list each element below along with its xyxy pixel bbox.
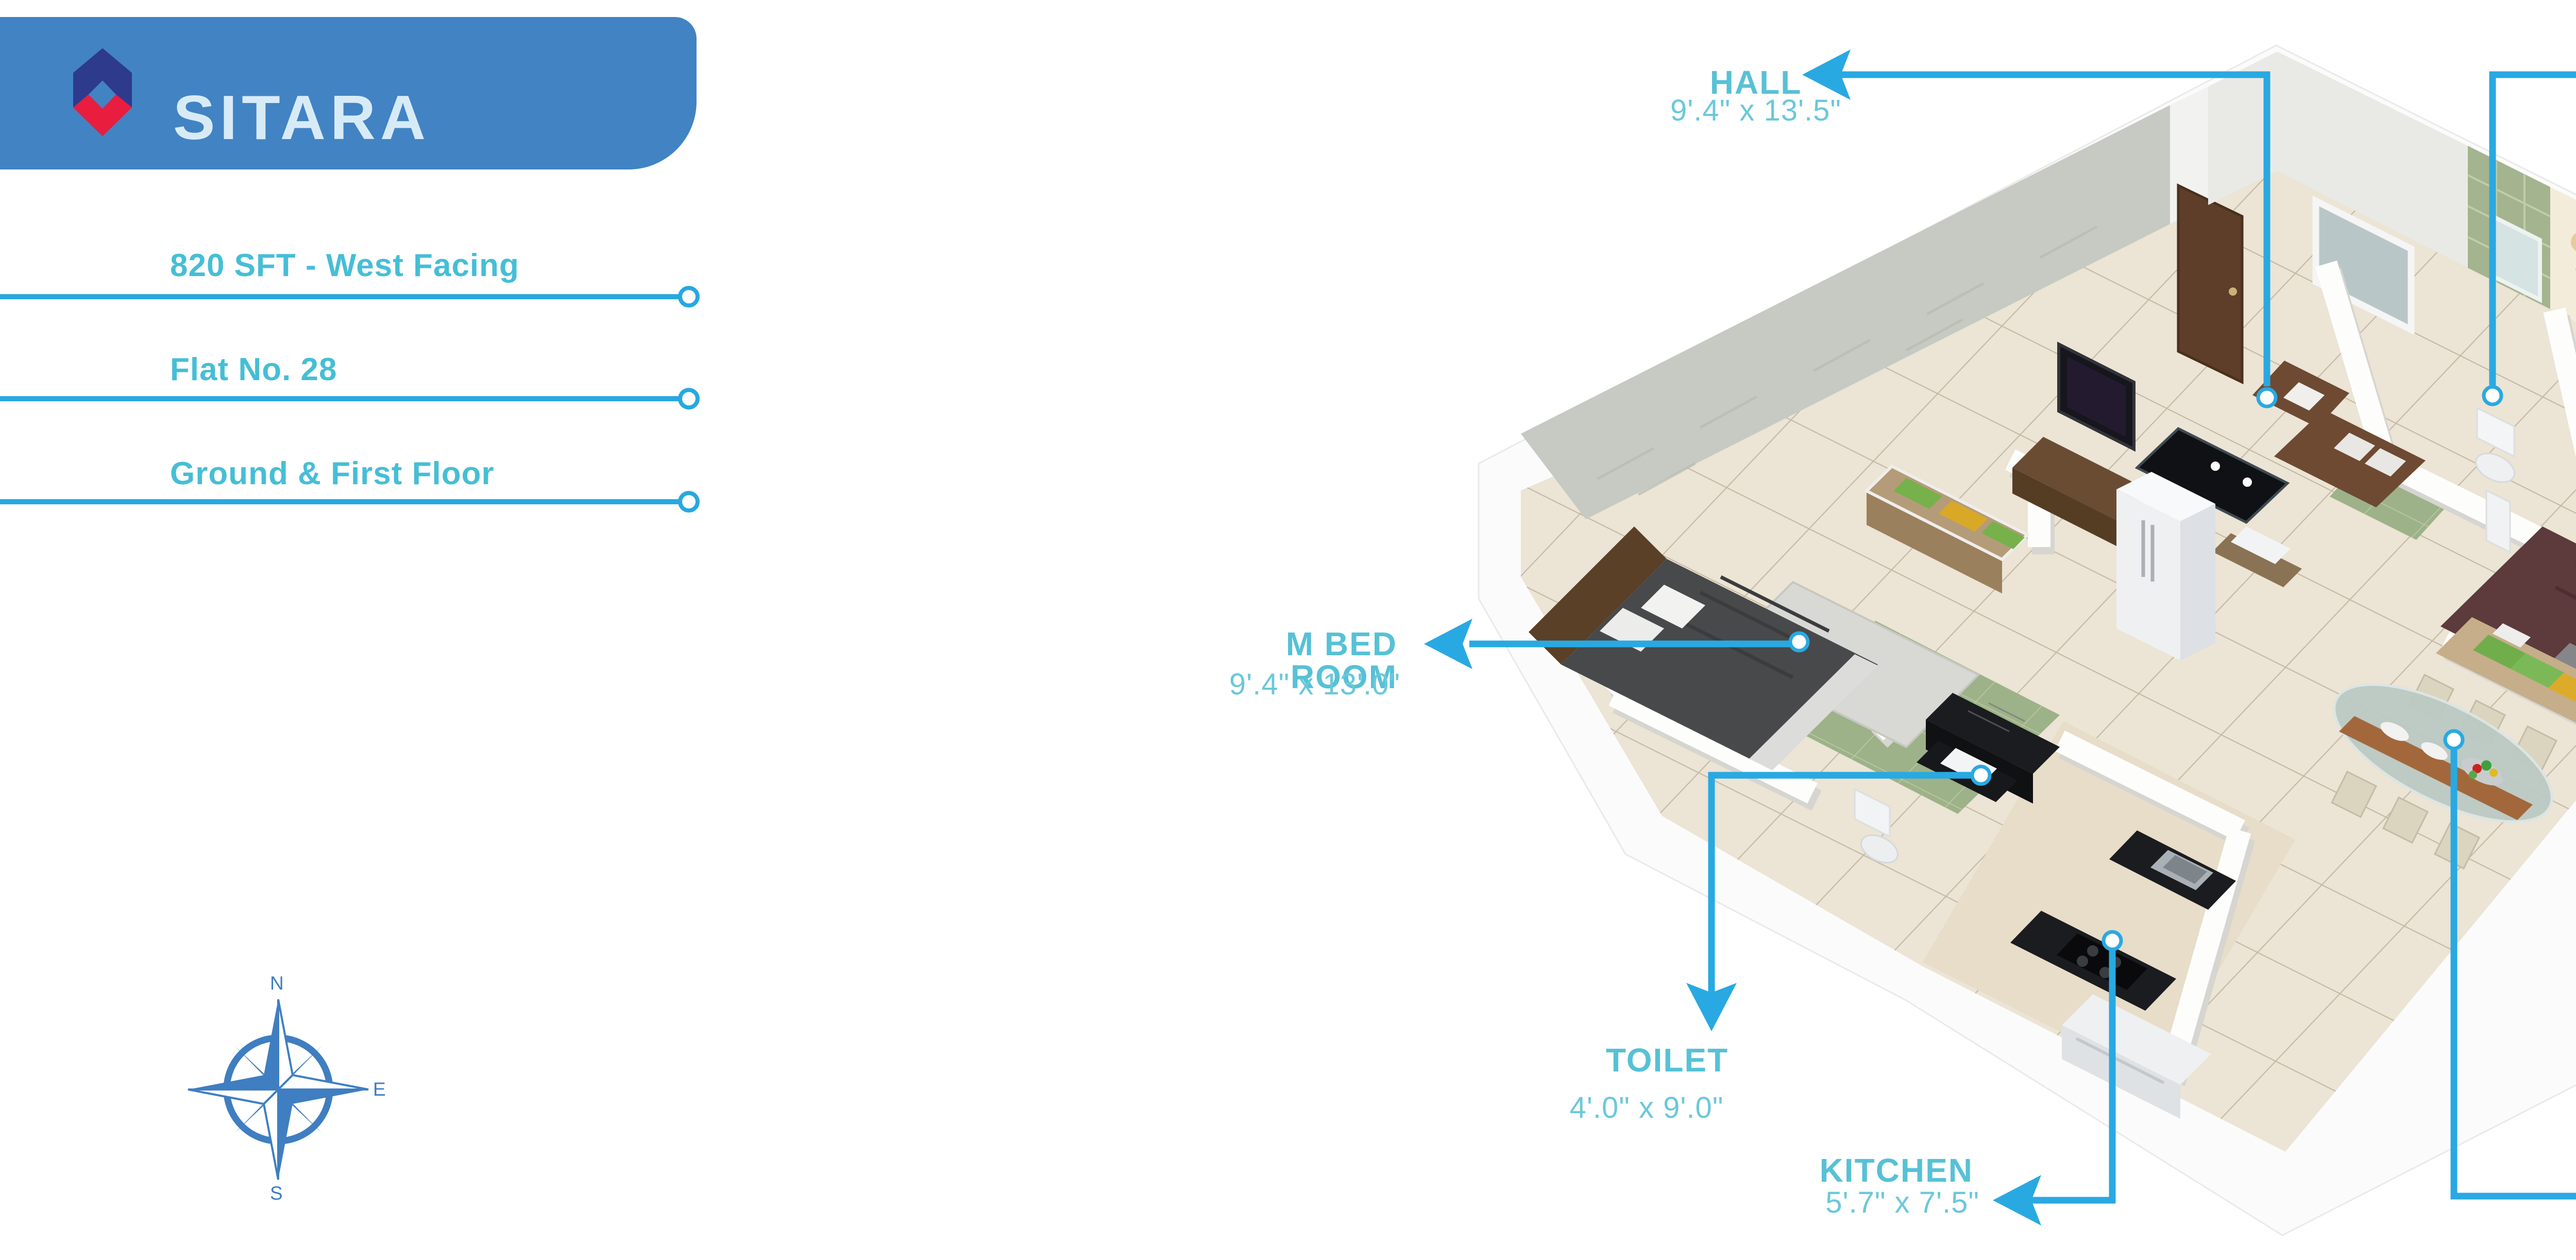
- room-dims-hall: 9'.4" x 13'.5": [1637, 96, 1874, 126]
- detail-rule-1-end: [678, 286, 700, 308]
- compass-north-label: N: [270, 973, 284, 994]
- detail-rule-1: [0, 294, 681, 299]
- compass-east-label: E: [373, 1079, 386, 1100]
- detail-rule-3-end: [678, 491, 700, 513]
- room-label-kitchen: KITCHEN: [1747, 1154, 1973, 1187]
- compass-icon: [188, 999, 368, 1180]
- brand-title: SITARA: [173, 81, 637, 154]
- detail-floors: Ground & First Floor: [170, 455, 495, 492]
- detail-rule-2-end: [678, 388, 700, 410]
- detail-flat-no: Flat No. 28: [170, 351, 337, 388]
- room-dims-m-bed-room: 9'.4" x 13'.0": [1174, 670, 1400, 700]
- detail-rule-2: [0, 396, 681, 401]
- brand-logo-icon: [73, 39, 132, 145]
- room-label-toilet-bottom: TOILET: [1585, 1044, 1750, 1077]
- detail-rule-3: [0, 499, 681, 504]
- entry-door: [2178, 185, 2242, 382]
- room-dims-kitchen: 5'.7" x 7'.5": [1753, 1188, 1979, 1218]
- compass-south-label: S: [270, 1183, 283, 1204]
- room-dims-toilet-bottom: 4'.0" x 9'.0": [1528, 1093, 1765, 1123]
- detail-area-facing: 820 SFT - West Facing: [170, 247, 519, 284]
